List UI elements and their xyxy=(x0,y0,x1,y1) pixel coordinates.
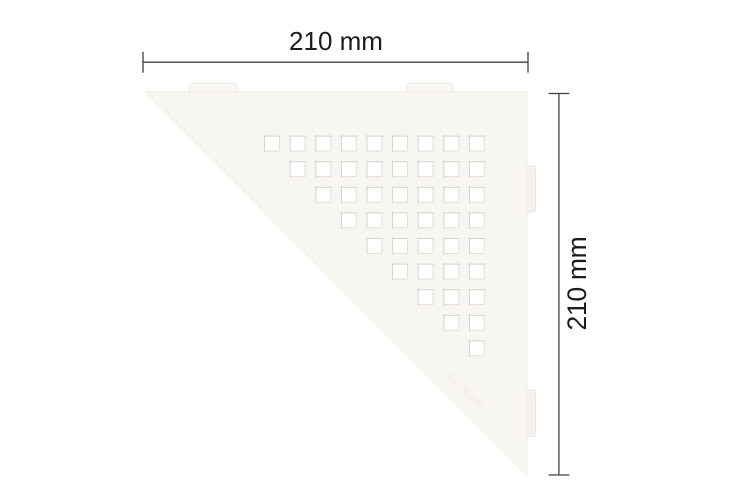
svg-text:210 mm: 210 mm xyxy=(562,237,592,331)
svg-text:210 mm: 210 mm xyxy=(289,26,383,56)
